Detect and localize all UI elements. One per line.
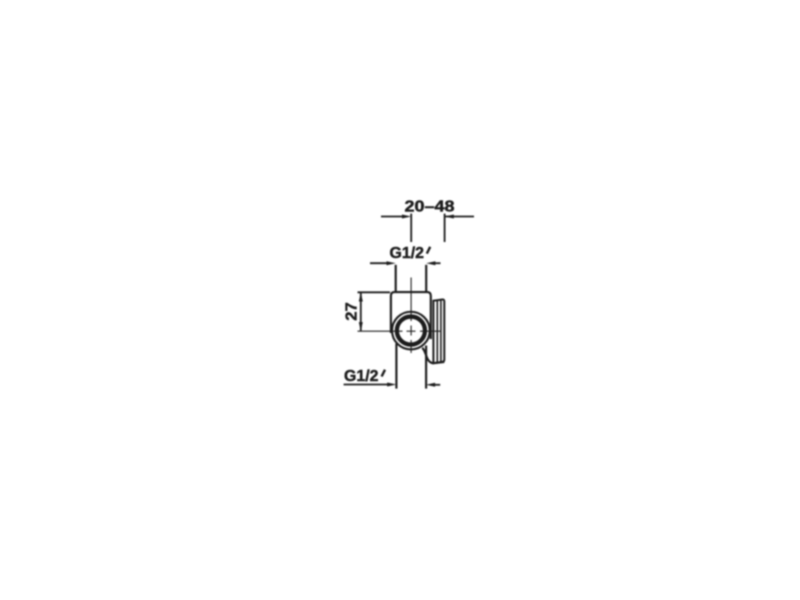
svg-text:G1/2: G1/2 bbox=[390, 245, 425, 262]
svg-text:G1/2: G1/2 bbox=[344, 368, 379, 385]
svg-text:20–48: 20–48 bbox=[405, 199, 455, 216]
svg-text:27: 27 bbox=[344, 302, 361, 321]
